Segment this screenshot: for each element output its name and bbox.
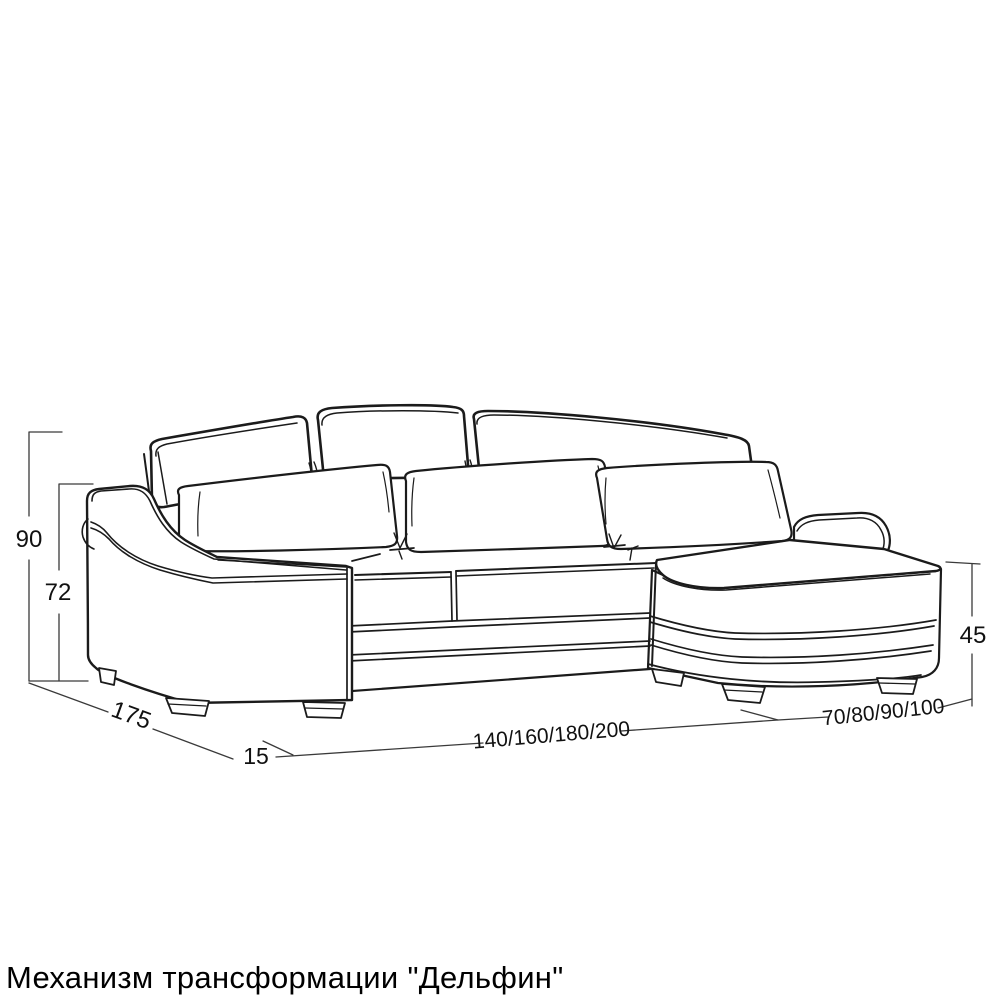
sofa-technical-drawing: 90 72 175 15 140/160/180/200 70/80/90/10… — [0, 0, 1000, 1000]
sofa-dimension-diagram: 90 72 175 15 140/160/180/200 70/80/90/10… — [0, 0, 1000, 1000]
dimension-total-height — [29, 432, 62, 681]
dim-label-chaise-height: 45 — [960, 622, 987, 649]
dim-label-seat-back-height: 72 — [45, 579, 72, 606]
pillow-middle — [405, 459, 612, 552]
chaise-section — [648, 540, 941, 687]
sofa-line-art — [82, 405, 941, 718]
pillow-right — [596, 462, 791, 549]
dim-label-chaise-width: 70/80/90/100 — [821, 695, 945, 731]
dim-label-bed-length: 140/160/180/200 — [472, 717, 631, 753]
dim-label-total-height: 90 — [16, 526, 43, 553]
dim-label-depth: 175 — [108, 696, 155, 735]
caption-transformation-mechanism: Механизм трансформации "Дельфин" — [6, 960, 564, 995]
dim-label-armrest-width: 15 — [243, 743, 269, 769]
